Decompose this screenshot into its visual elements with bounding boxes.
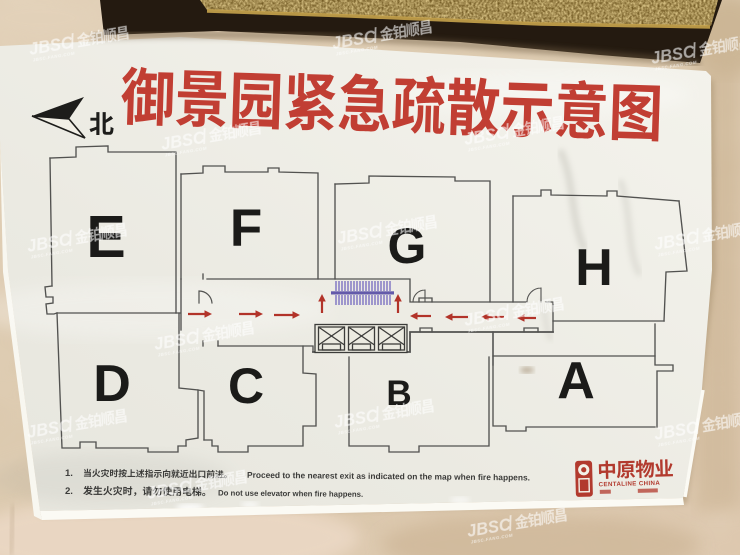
svg-text:Do not use elevator when fire: Do not use elevator when fire happens. (218, 488, 363, 498)
svg-text:A: A (557, 352, 595, 410)
svg-text:2.: 2. (65, 486, 73, 497)
svg-text:1.: 1. (65, 468, 73, 479)
svg-text:D: D (93, 355, 131, 413)
svg-text:C: C (228, 358, 264, 414)
svg-text:H: H (575, 239, 613, 297)
svg-text:F: F (230, 199, 262, 258)
